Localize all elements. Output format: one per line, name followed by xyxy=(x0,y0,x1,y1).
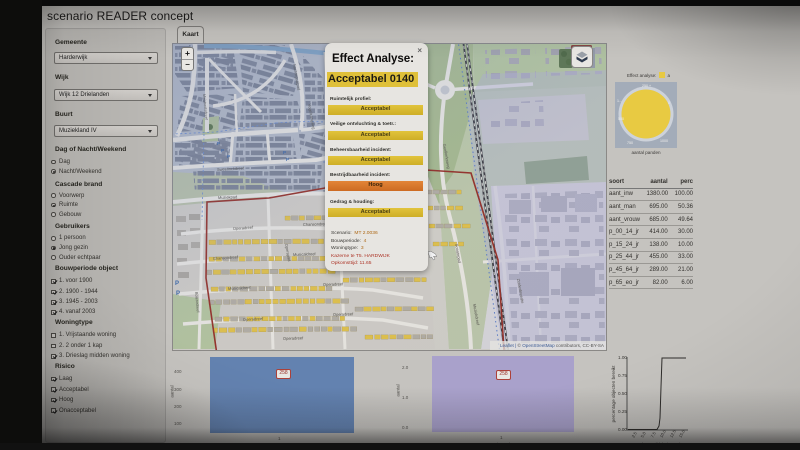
svg-text:Operadreef: Operadreef xyxy=(283,335,304,341)
svg-text:Muziekpad: Muziekpad xyxy=(218,194,238,200)
svg-text:1.00: 1.00 xyxy=(618,355,627,360)
svg-text:P: P xyxy=(175,281,179,287)
svg-text:percentage objecten bereikt: percentage objecten bereikt xyxy=(611,365,616,422)
svg-text:0.00: 0.00 xyxy=(618,427,627,432)
svg-text:P: P xyxy=(221,148,224,153)
svg-text:2.5: 2.5 xyxy=(631,430,639,438)
svg-text:5.0: 5.0 xyxy=(640,430,648,438)
svg-text:P: P xyxy=(227,154,230,159)
svg-text:P: P xyxy=(217,141,220,146)
svg-text:0.75: 0.75 xyxy=(618,373,627,378)
svg-text:0.50: 0.50 xyxy=(618,391,627,396)
svg-text:750: 750 xyxy=(627,141,633,145)
svg-text:1000: 1000 xyxy=(660,139,668,143)
svg-text:P: P xyxy=(286,157,289,162)
svg-text:0.25: 0.25 xyxy=(618,409,627,414)
svg-text:Musicaldreef: Musicaldreef xyxy=(293,251,317,257)
svg-text:250 +: 250 + xyxy=(642,84,651,88)
svg-text:500: 500 xyxy=(618,117,624,121)
svg-text:7.5: 7.5 xyxy=(650,430,658,438)
svg-text:P: P xyxy=(176,291,180,297)
svg-text:Operadreef: Operadreef xyxy=(323,281,344,287)
svg-text:1...: 1... xyxy=(617,99,622,103)
svg-text:Operadreef: Operadreef xyxy=(333,311,354,317)
svg-text:P: P xyxy=(283,150,286,155)
svg-text:0: 0 xyxy=(668,101,670,105)
